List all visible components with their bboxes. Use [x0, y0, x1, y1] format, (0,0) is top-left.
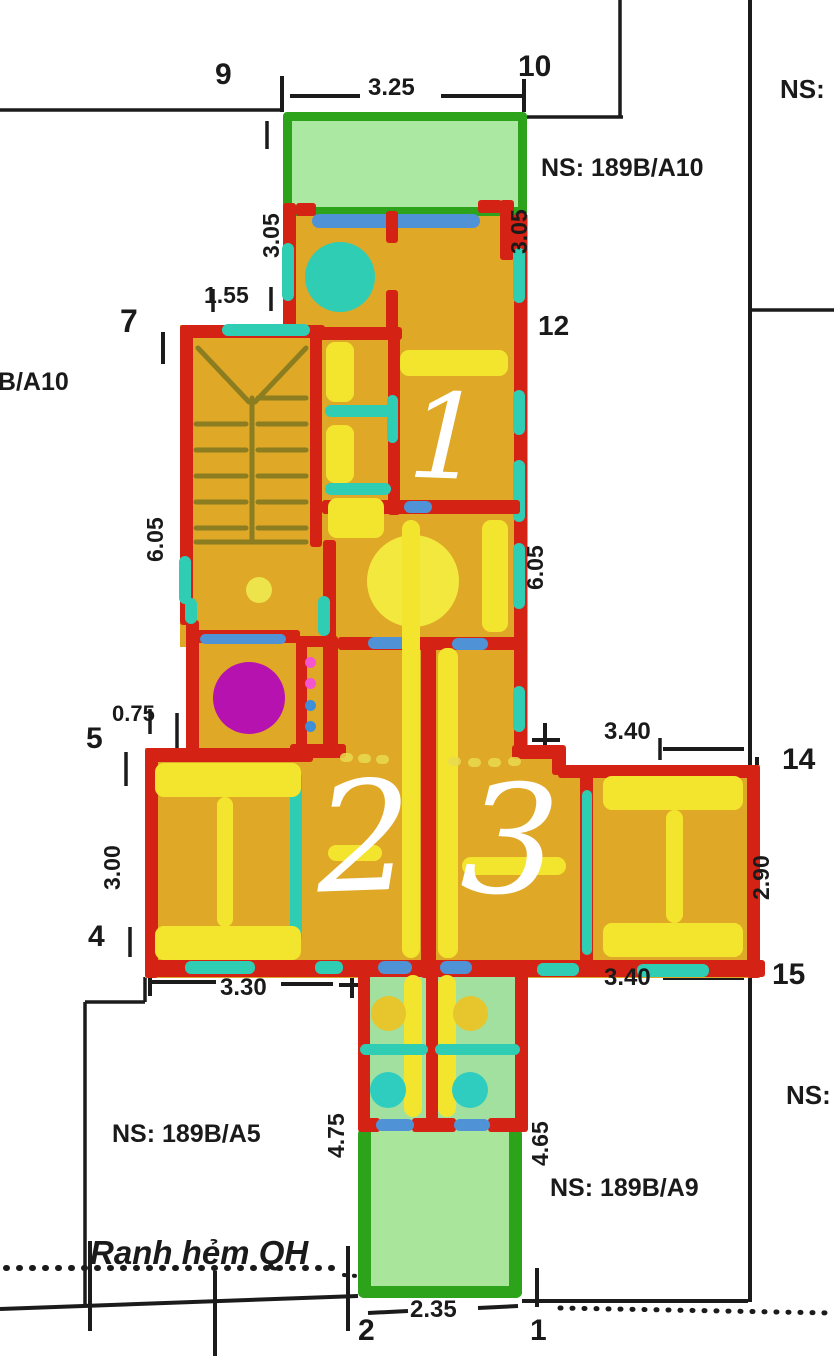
- ns-label-neighbor-bottom-left: NS: 189B/A5: [112, 1122, 261, 1147]
- dim-left-bottom-width: 3.30: [220, 976, 267, 1000]
- stair-treads: [0, 0, 834, 1356]
- dim-upper-right-height: 3.05: [508, 209, 531, 254]
- ns-label-neighbor-left: 9B/A10: [0, 370, 69, 395]
- dim-mid-left-height: 6.05: [144, 517, 167, 562]
- dim-right-width-top: 3.40: [604, 720, 651, 744]
- point-label-4: 4: [88, 922, 105, 952]
- point-label-7: 7: [120, 305, 138, 337]
- dim-left-offset: 0.75: [112, 703, 155, 725]
- point-label-12: 12: [538, 312, 569, 340]
- dim-top-width: 3.25: [368, 76, 415, 100]
- alley-boundary-label: Ranh hẻm QH: [90, 1236, 308, 1269]
- dim-upper-left-height: 3.05: [260, 213, 283, 258]
- dim-left-room-height: 3.00: [101, 845, 124, 890]
- point-label-15: 15: [772, 960, 805, 990]
- ns-label-top-right: NS:: [780, 76, 825, 102]
- point-label-5: 5: [86, 724, 103, 754]
- dim-stair-entry: 1.55: [204, 284, 249, 307]
- room1-number: 1: [406, 377, 485, 498]
- room2-number: 2: [313, 760, 415, 915]
- room3-number: 3: [458, 763, 563, 920]
- ns-label-neighbor-top: NS: 189B/A10: [541, 156, 704, 181]
- dim-mid-right-height: 6.05: [524, 545, 547, 590]
- dim-court-left-height: 4.75: [325, 1113, 348, 1158]
- dim-right-width-bottom: 3.40: [604, 966, 651, 990]
- point-label-9: 9: [215, 60, 232, 90]
- point-label-2: 2: [358, 1316, 375, 1346]
- dim-bottom-width: 2.35: [410, 1298, 457, 1322]
- ns-label-right-bottom: NS:: [786, 1082, 831, 1108]
- dim-right-room-height: 2.90: [750, 855, 773, 900]
- dim-court-right-height: 4.65: [529, 1121, 552, 1166]
- point-label-10: 10: [518, 52, 551, 82]
- floor-plan: 1 2 3 9 10 7 12 5 4 14 15 2 1 3.25 1.55 …: [0, 0, 834, 1356]
- point-label-14: 14: [782, 745, 815, 775]
- ns-label-neighbor-bottom: NS: 189B/A9: [550, 1176, 699, 1201]
- point-label-1: 1: [530, 1316, 547, 1346]
